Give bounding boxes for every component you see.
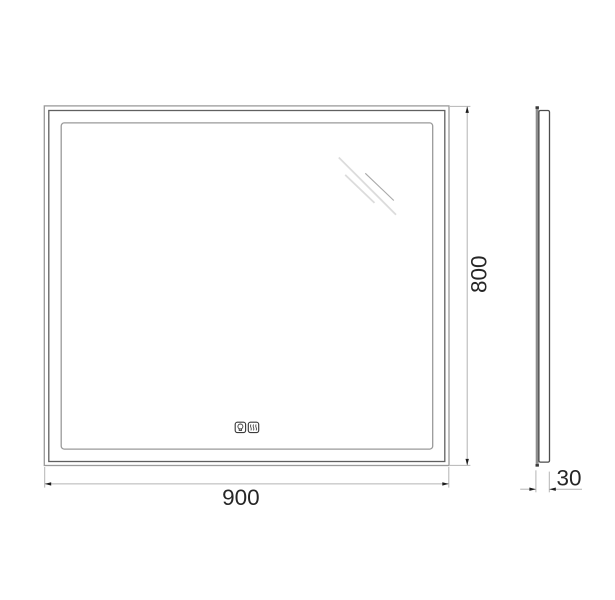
svg-text:800: 800 <box>467 255 492 293</box>
svg-text:30: 30 <box>556 465 581 490</box>
svg-text:900: 900 <box>222 485 260 510</box>
